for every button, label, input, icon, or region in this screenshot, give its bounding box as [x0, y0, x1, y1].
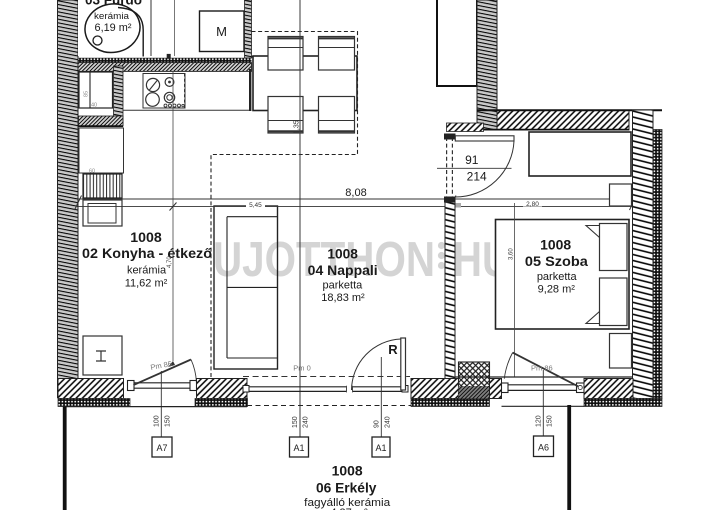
svg-text:18,83 m²: 18,83 m²: [321, 292, 365, 304]
svg-text:100: 100: [154, 415, 161, 427]
svg-text:214: 214: [467, 169, 487, 183]
svg-text:A7: A7: [156, 443, 167, 453]
svg-text:kerámia: kerámia: [94, 11, 130, 22]
svg-text:Pm 0: Pm 0: [293, 364, 311, 373]
svg-text:8,08: 8,08: [345, 187, 366, 199]
svg-text:1008: 1008: [540, 237, 571, 252]
svg-text:85: 85: [84, 91, 90, 97]
svg-text:04 Nappali: 04 Nappali: [308, 263, 378, 278]
svg-text:06 Erkély: 06 Erkély: [316, 480, 377, 496]
svg-text:91: 91: [465, 153, 479, 167]
svg-text:R: R: [388, 342, 398, 357]
svg-text:M: M: [216, 24, 227, 39]
svg-text:4,70: 4,70: [167, 256, 173, 268]
svg-text:3,60: 3,60: [509, 248, 515, 260]
svg-text:A1: A1: [375, 443, 386, 453]
svg-text:02 Konyha - étkező: 02 Konyha - étkező: [82, 246, 212, 261]
svg-text:240: 240: [303, 416, 310, 428]
svg-text:240: 240: [385, 416, 392, 428]
svg-text:1,35: 1,35: [294, 120, 301, 134]
svg-text:1008: 1008: [327, 246, 358, 261]
svg-text:150: 150: [292, 416, 299, 428]
svg-text:05 Szoba: 05 Szoba: [525, 254, 589, 269]
svg-text:120: 120: [536, 415, 543, 427]
svg-text:90: 90: [374, 420, 381, 428]
svg-text:150: 150: [547, 415, 554, 427]
svg-text:parketta: parketta: [537, 271, 578, 283]
svg-text:Pm 86: Pm 86: [531, 364, 553, 373]
svg-text:40: 40: [91, 103, 97, 109]
svg-text:A6: A6: [538, 443, 549, 453]
svg-text:5,45: 5,45: [249, 202, 262, 209]
svg-text:11,62 m²: 11,62 m²: [125, 277, 168, 289]
svg-text:parketta: parketta: [323, 280, 364, 292]
svg-text:A1: A1: [293, 443, 304, 453]
svg-text:kerámia: kerámia: [127, 265, 167, 277]
svg-text:6,19 m²: 6,19 m²: [95, 22, 132, 34]
svg-text:9,28 m²: 9,28 m²: [538, 284, 576, 296]
svg-text:1008: 1008: [332, 463, 363, 478]
svg-text:2,80: 2,80: [526, 201, 539, 208]
svg-text:1008: 1008: [130, 230, 162, 245]
svg-text:150: 150: [165, 415, 172, 427]
